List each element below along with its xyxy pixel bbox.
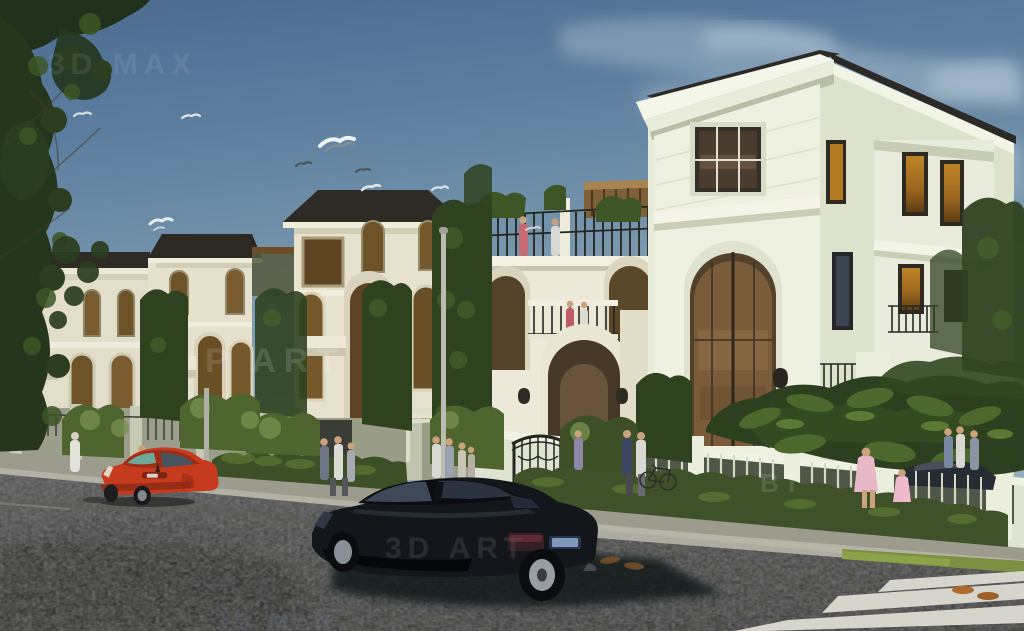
svg-text:3D MAX: 3D MAX	[215, 609, 338, 631]
svg-text:3D ART: 3D ART	[385, 532, 528, 565]
svg-text:P ART: P ART	[205, 342, 345, 380]
svg-text:BT: BT	[760, 468, 805, 498]
svg-text:3D MAX: 3D MAX	[48, 48, 197, 81]
